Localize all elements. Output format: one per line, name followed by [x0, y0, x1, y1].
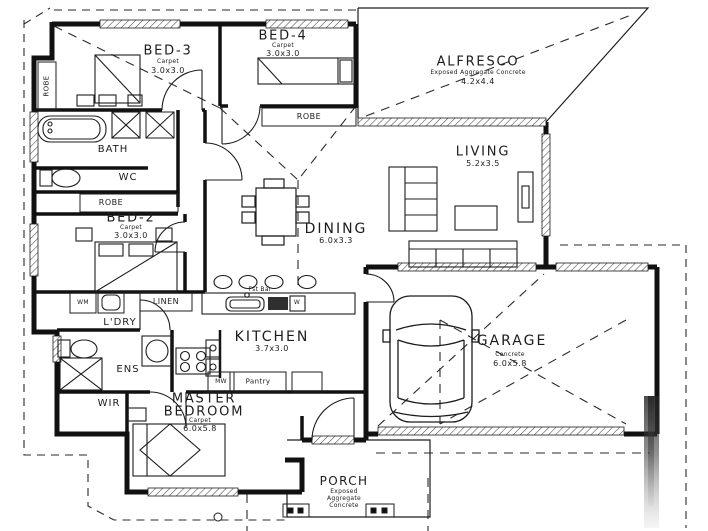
- fixture-label-microwave: MW: [215, 379, 227, 385]
- room-size-dining: 6.0x3.3: [319, 237, 353, 245]
- room-label-living: LIVING: [456, 146, 510, 159]
- room-size-bed4: 3.0x3.0: [266, 50, 300, 58]
- stool-icon: [214, 276, 232, 289]
- room-label-bath: BATH: [98, 145, 129, 155]
- room-size-garage: 6.0x5.8: [493, 360, 527, 368]
- dining-table-icon: [242, 179, 309, 245]
- coffee-table-icon: [455, 206, 497, 230]
- fixture-label-pantry: Pantry: [246, 379, 271, 386]
- plan-marker: [214, 513, 222, 521]
- tv-unit-icon: [518, 172, 533, 222]
- fixture-label-robe-bed2: ROBE: [99, 199, 123, 207]
- fixture-label-dishwasher: W: [294, 300, 300, 306]
- room-label-wir: WIR: [98, 399, 121, 409]
- room-size-master: 6.0x5.8: [183, 425, 217, 433]
- stool-icon: [298, 276, 316, 289]
- room-label-dining: DINING: [305, 222, 368, 236]
- fridge-box: [292, 372, 322, 392]
- fixture-label-breakfast-bar: Fst Bar: [248, 287, 271, 293]
- kitchen-sink-icon: [226, 297, 264, 311]
- room-size-bed2: 3.0x3.0: [114, 232, 148, 240]
- room-finish-garage: Concrete: [495, 352, 524, 358]
- room-label-garage: GARAGE: [477, 334, 548, 348]
- drainer-dark-blob: [268, 297, 288, 310]
- scan-artifact-streak: [644, 396, 659, 528]
- porch-pillars: [214, 504, 394, 521]
- room-label-bed3: BED-3: [143, 45, 192, 58]
- wc-toilet-icon: [40, 170, 52, 186]
- room-size-kitchen: 3.7x3.0: [255, 345, 289, 353]
- room-label-bed4: BED-4: [258, 30, 307, 43]
- room-finish-alfresco: Exposed Aggregate Concrete: [430, 70, 525, 76]
- floorplan-drawing: [0, 0, 708, 531]
- fixture-label-linen: LINEN: [153, 298, 179, 306]
- room-size-alfresco: 4.2x4.4: [461, 78, 495, 86]
- room-finish-porch-3: Concrete: [329, 503, 358, 509]
- room-label-alfresco: ALFRESCO: [437, 56, 520, 69]
- room-label-kitchen: KITCHEN: [235, 330, 310, 344]
- room-label-wc: WC: [119, 173, 138, 183]
- room-finish-bed3: Carpet: [157, 59, 179, 65]
- room-label-ens: ENS: [116, 365, 139, 375]
- living-furniture: [389, 167, 533, 267]
- room-label-laundry: L'DRY: [103, 318, 136, 328]
- room-size-bed3: 3.0x3.0: [151, 67, 185, 75]
- room-label-bed2: BED-2: [106, 212, 155, 225]
- robe-bed2-cabinet: [80, 194, 178, 212]
- fixture-label-robe-bed3: ROBE: [44, 75, 51, 96]
- floor-plan-page: BED-3 Carpet 3.0x3.0 BED-4 Carpet 3.0x3.…: [0, 0, 708, 531]
- room-label-porch: PORCH: [320, 475, 369, 487]
- car-icon: [383, 296, 479, 422]
- fixture-label-wm: WM: [77, 300, 89, 306]
- windows: [30, 20, 648, 496]
- fixture-label-robe-bed4: ROBE: [297, 113, 321, 121]
- room-size-living: 5.2x3.5: [466, 160, 500, 168]
